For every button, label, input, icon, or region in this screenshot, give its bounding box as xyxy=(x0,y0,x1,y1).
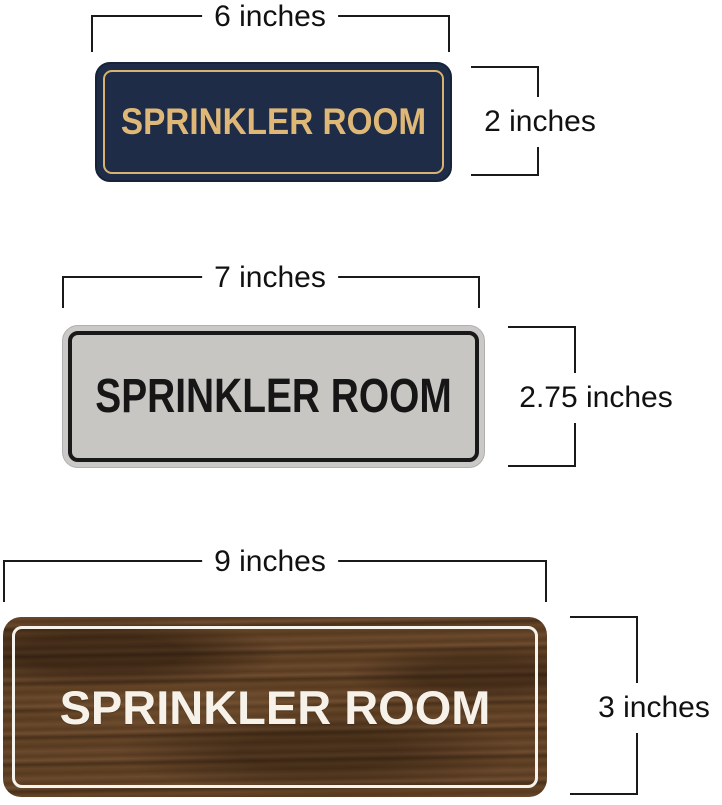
width-dimension-tick-right-navy xyxy=(448,15,450,52)
height-dimension-stub-top-navy xyxy=(471,66,538,68)
width-dimension-tick-right-wood xyxy=(545,560,547,602)
wood-sign-text: SPRINKLER ROOM xyxy=(3,617,547,797)
navy-gold-sign: SPRINKLER ROOM xyxy=(95,62,452,182)
width-dimension-tick-left-silver xyxy=(62,276,64,308)
height-dimension-label-wood: 3 inches xyxy=(592,683,716,733)
height-dimension-stub-bottom-navy xyxy=(471,174,538,176)
silver-black-sign: SPRINKLER ROOM xyxy=(62,325,485,468)
navy-sign-text: SPRINKLER ROOM xyxy=(115,64,433,180)
silver-sign-text: SPRINKLER ROOM xyxy=(103,326,444,467)
height-dimension-label-silver: 2.75 inches xyxy=(513,373,678,423)
product-dimension-diagram: 6 inches SPRINKLER ROOM 2 inches 7 inche… xyxy=(0,0,722,805)
width-dimension-label-wood: 9 inches xyxy=(202,543,338,581)
width-dimension-tick-left-wood xyxy=(3,560,5,602)
width-dimension-label-navy: 6 inches xyxy=(202,0,338,36)
height-dimension-stub-top-silver xyxy=(508,326,574,328)
width-dimension-tick-right-silver xyxy=(478,276,480,308)
height-dimension-stub-top-wood xyxy=(570,616,636,618)
height-dimension-label-navy: 2 inches xyxy=(478,97,602,147)
height-dimension-stub-bottom-wood xyxy=(570,793,636,795)
height-dimension-stub-bottom-silver xyxy=(508,465,574,467)
width-dimension-tick-left-navy xyxy=(91,15,93,52)
walnut-wood-sign: SPRINKLER ROOM xyxy=(3,617,547,797)
width-dimension-label-silver: 7 inches xyxy=(202,259,338,297)
